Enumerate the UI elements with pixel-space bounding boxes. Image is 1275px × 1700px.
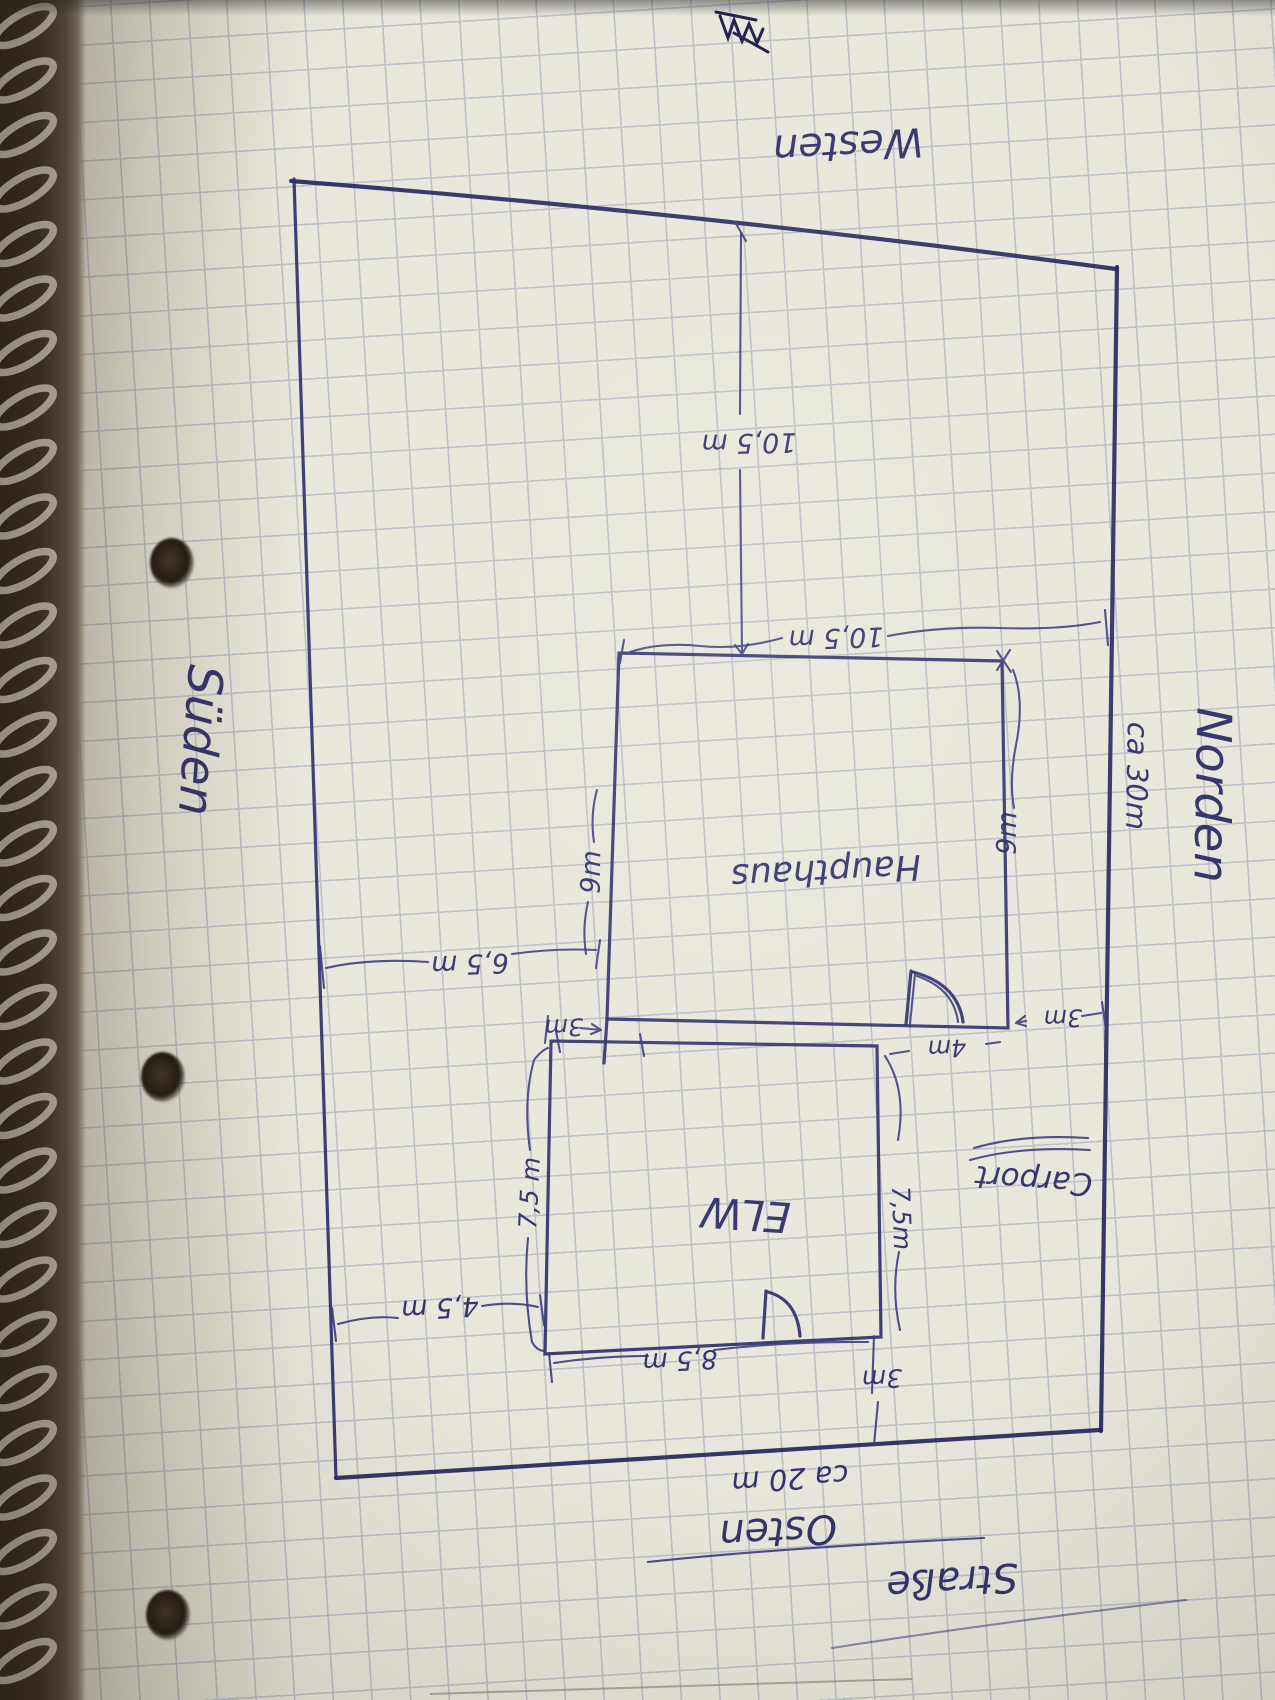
pen-scribble xyxy=(716,12,768,52)
stray-ink-line xyxy=(832,1600,1186,1648)
dim-annex-gap-east: 3m xyxy=(861,1363,902,1393)
notebook-photo: Westen Süden Norden Osten Straße Hauptha… xyxy=(0,0,1275,1700)
spiral-binding xyxy=(0,0,86,1700)
dim-south-setback: 6,5 m xyxy=(431,947,510,981)
pencil-line xyxy=(430,1679,912,1694)
spiral-coils xyxy=(0,0,86,1700)
dim-east-boundary: ca 20 m xyxy=(730,1458,849,1500)
dim-house-side-east: 9m xyxy=(992,811,1024,855)
label-south: Süden xyxy=(167,663,233,818)
label-carport: Carport xyxy=(973,1158,1094,1202)
dim-annex-side-west: 7,5 m xyxy=(513,1156,546,1229)
door-arc-elw xyxy=(763,1291,800,1338)
dim-house-side-west: 9m xyxy=(576,850,608,894)
dim-north-boundary: ca 30m xyxy=(1119,722,1155,831)
carport-underline xyxy=(970,1137,1090,1160)
label-annex: ELW xyxy=(698,1187,792,1242)
dim-house-gap-north: 3m xyxy=(1043,1003,1083,1032)
label-main-house: Haupthaus xyxy=(730,846,922,896)
dim-annex-setback-south: 4,5 m xyxy=(400,1290,479,1325)
label-west: Westen xyxy=(772,118,925,172)
dimension-house-side-east xyxy=(1012,670,1020,808)
dim-house-width: 10,5 m xyxy=(788,620,884,654)
dimension-annex-gap-east xyxy=(874,1402,878,1445)
site-plan-sketch: Westen Süden Norden Osten Straße Hauptha… xyxy=(0,0,1275,1700)
label-north: Norden xyxy=(1182,707,1241,883)
dim-west-setback: 10,5 m xyxy=(701,426,797,459)
dim-annex-side-east: 7,5m xyxy=(886,1185,917,1250)
dim-house-opening: 4m xyxy=(927,1033,967,1062)
dim-annex-gap-west: 3m xyxy=(544,1012,584,1041)
label-east: Osten xyxy=(718,1505,838,1557)
dim-annex-width: 8,5 m xyxy=(642,1343,718,1377)
label-street: Straße xyxy=(885,1553,1020,1608)
door-arc-haupthaus xyxy=(906,971,963,1024)
